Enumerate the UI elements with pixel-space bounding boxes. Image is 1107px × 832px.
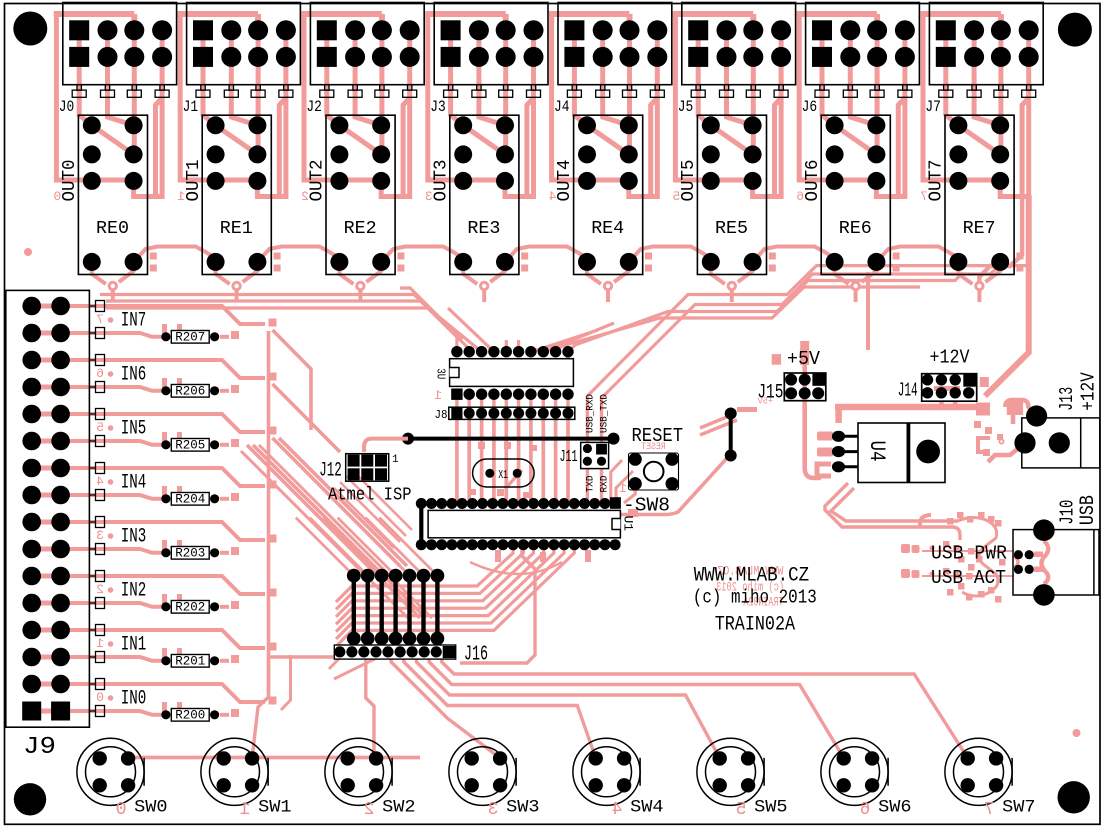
svg-text:RE6: RE6: [839, 219, 872, 239]
svg-text:RE2: RE2: [344, 219, 377, 239]
svg-text:5: 5: [672, 189, 680, 204]
svg-text:J3: J3: [430, 98, 446, 116]
svg-text:J13: J13: [1056, 387, 1078, 411]
svg-text:USB_RXD: USB_RXD: [586, 394, 597, 433]
svg-text:IN4: IN4: [121, 471, 147, 494]
svg-text:-SW8: -SW8: [623, 495, 670, 517]
svg-text:5: 5: [736, 800, 747, 820]
svg-text:J10: J10: [1057, 500, 1079, 525]
svg-text:6: 6: [860, 800, 871, 820]
svg-text:OUT0: OUT0: [60, 160, 80, 202]
svg-text:Atmel ISP: Atmel ISP: [328, 486, 412, 506]
svg-text:RXD: RXD: [600, 476, 611, 493]
svg-text:0: 0: [53, 189, 61, 204]
svg-text:OUT1: OUT1: [184, 160, 204, 202]
svg-text:R204: R204: [175, 493, 205, 507]
svg-text:+12V: +12V: [1078, 372, 1100, 411]
svg-text:IN3: IN3: [121, 525, 147, 548]
svg-text:OUT5: OUT5: [679, 160, 699, 202]
svg-text:J0: J0: [59, 98, 75, 116]
svg-text:1: 1: [392, 454, 399, 466]
svg-text:J12: J12: [319, 459, 342, 482]
svg-text:J1: J1: [183, 98, 199, 116]
svg-text:7: 7: [920, 189, 928, 204]
svg-text:OUT4: OUT4: [555, 160, 575, 202]
svg-text:J16: J16: [464, 644, 488, 667]
svg-text:3: 3: [488, 800, 499, 820]
svg-text:RE7: RE7: [963, 219, 996, 239]
svg-text:IN2: IN2: [121, 579, 147, 602]
svg-text:6: 6: [796, 189, 804, 204]
svg-text:0: 0: [116, 800, 127, 820]
svg-text:USB PWR: USB PWR: [931, 543, 1007, 565]
svg-text:R207: R207: [175, 331, 205, 345]
svg-text:6: 6: [96, 366, 104, 381]
svg-text:OUT7: OUT7: [927, 160, 947, 202]
svg-text:5: 5: [96, 420, 104, 435]
svg-text:OUT2: OUT2: [308, 160, 328, 202]
svg-text:RE3: RE3: [467, 219, 500, 239]
svg-text:7: 7: [984, 800, 995, 820]
svg-text:RE5: RE5: [715, 219, 748, 239]
svg-text:SW7: SW7: [1002, 798, 1036, 818]
svg-text:J9: J9: [23, 734, 56, 761]
svg-text:RESET: RESET: [632, 425, 684, 447]
svg-text:4: 4: [612, 800, 623, 820]
svg-text:1: 1: [177, 189, 185, 204]
svg-text:SW1: SW1: [258, 798, 292, 818]
svg-text:SW5: SW5: [754, 798, 788, 818]
svg-text:J7: J7: [925, 98, 941, 116]
svg-text:X1: X1: [498, 468, 508, 482]
svg-text:4: 4: [549, 189, 557, 204]
svg-text:3: 3: [425, 189, 433, 204]
svg-text:2: 2: [364, 800, 375, 820]
svg-text:J14: J14: [898, 380, 918, 402]
svg-text:7: 7: [96, 312, 104, 327]
svg-text:TRAIN02A: TRAIN02A: [715, 614, 796, 637]
svg-text:+5V: +5V: [787, 348, 821, 370]
svg-text:U4: U4: [864, 441, 889, 462]
svg-text:2: 2: [301, 189, 309, 204]
svg-text:R205: R205: [175, 439, 205, 453]
svg-text:IN1: IN1: [121, 633, 147, 656]
svg-text:R202: R202: [175, 601, 205, 615]
svg-text:0: 0: [96, 690, 104, 705]
svg-text:IN5: IN5: [121, 417, 147, 440]
svg-text:RE0: RE0: [96, 219, 129, 239]
svg-text:4: 4: [96, 474, 104, 489]
svg-text:+12V: +12V: [930, 346, 971, 368]
svg-text:J4: J4: [554, 98, 570, 116]
svg-text:(c) miho 2013: (c) miho 2013: [693, 587, 817, 609]
svg-text:USB: USB: [1077, 495, 1100, 525]
svg-text:USB_TXD: USB_TXD: [600, 394, 611, 433]
svg-text:1: 1: [240, 800, 251, 820]
svg-text:IN6: IN6: [121, 363, 147, 386]
svg-text:2: 2: [96, 582, 104, 597]
svg-text:RE1: RE1: [220, 219, 253, 239]
svg-text:SW4: SW4: [630, 798, 664, 818]
svg-text:SW3: SW3: [506, 798, 539, 818]
svg-text:OUT3: OUT3: [431, 160, 451, 202]
svg-text:3U: 3U: [433, 368, 446, 379]
svg-text:RE4: RE4: [591, 219, 624, 239]
svg-text:R200: R200: [175, 709, 205, 723]
svg-text:J8: J8: [435, 408, 448, 422]
svg-text:IN0: IN0: [121, 687, 147, 710]
svg-text:TXD: TXD: [586, 476, 597, 493]
svg-text:IN7: IN7: [121, 309, 147, 332]
svg-text:SW6: SW6: [878, 798, 912, 818]
svg-text:R201: R201: [175, 655, 205, 669]
svg-text:SW0: SW0: [134, 798, 168, 818]
svg-text:J2: J2: [306, 98, 322, 116]
svg-text:USB ACT: USB ACT: [931, 567, 1006, 589]
svg-text:R203: R203: [175, 547, 205, 561]
svg-text:J11: J11: [560, 448, 578, 467]
svg-text:WWW.MLAB.CZ: WWW.MLAB.CZ: [694, 565, 809, 588]
svg-text:U1: U1: [621, 516, 635, 532]
svg-text:OUT6: OUT6: [803, 160, 823, 202]
svg-text:1: 1: [96, 636, 104, 651]
svg-text:SW2: SW2: [382, 798, 416, 818]
svg-text:J5: J5: [678, 98, 694, 116]
svg-text:R206: R206: [175, 385, 205, 399]
svg-text:1: 1: [434, 388, 442, 403]
svg-text:J6: J6: [802, 98, 818, 116]
svg-text:3: 3: [96, 528, 104, 543]
svg-text:J15: J15: [757, 382, 783, 405]
